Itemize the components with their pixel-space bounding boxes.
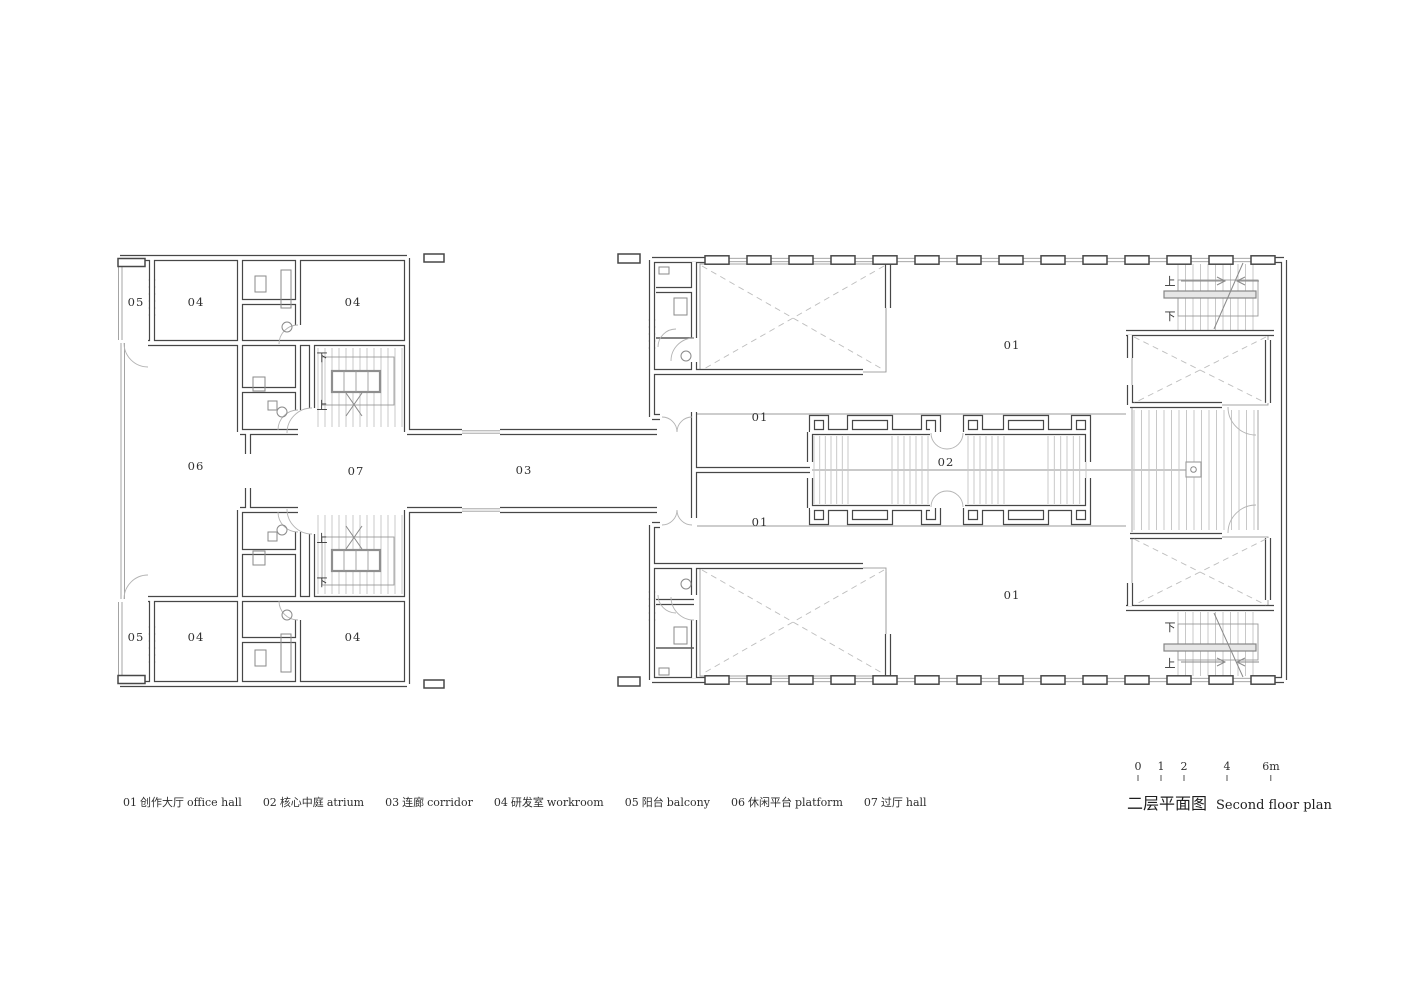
room-label-01-lower: 01 — [1004, 588, 1021, 602]
scale-tick-4: 4 — [1224, 760, 1231, 781]
legend-en: office hall — [187, 796, 242, 809]
room-label-01-upper: 01 — [1004, 338, 1021, 352]
legend-item-07: 07过厅hall — [864, 794, 930, 810]
sanitary-fixtures — [253, 267, 691, 675]
stair-up-label: 上 — [317, 532, 328, 545]
title-chinese: 二层平面图 — [1127, 794, 1207, 813]
legend-zh: 核心中庭 — [280, 796, 324, 809]
tick-mark — [1161, 775, 1162, 781]
room-label-02: 02 — [938, 455, 955, 469]
legend-zh: 连廊 — [402, 796, 424, 809]
tick-mark — [1227, 775, 1228, 781]
room-label-03: 03 — [516, 463, 533, 477]
legend-zh: 阳台 — [642, 796, 664, 809]
scale-tick-1: 1 — [1158, 760, 1165, 781]
scale-tick-0: 0 — [1135, 760, 1142, 781]
room-label-07: 07 — [348, 464, 365, 478]
stair-down-label: 下 — [317, 351, 328, 364]
legend-zh: 休闲平台 — [748, 796, 792, 809]
floor-plan-drawing: 05 04 04 06 07 03 05 04 04 01 01 01 01 0… — [0, 0, 1414, 1000]
void-x-icon — [702, 570, 884, 674]
void-x-icon — [1134, 337, 1266, 403]
room-label-06: 06 — [188, 459, 205, 473]
room-label-01-entry-lower: 01 — [752, 515, 769, 529]
floor-plan-page: 05 04 04 06 07 03 05 04 04 01 01 01 01 0… — [0, 0, 1414, 1000]
legend-item-02: 02核心中庭atrium — [263, 794, 367, 810]
legend-en: corridor — [427, 796, 473, 809]
stair-up-label: 上 — [317, 399, 328, 412]
room-label-01-entry-upper: 01 — [752, 410, 769, 424]
legend-num: 05 — [625, 796, 639, 809]
legend-num: 01 — [123, 796, 137, 809]
drawing-title: 二层平面图Second floor plan — [1127, 790, 1332, 814]
void-x-icon — [702, 266, 884, 370]
legend-num: 02 — [263, 796, 277, 809]
legend-en: workroom — [547, 796, 604, 809]
legend-item-05: 05阳台balcony — [625, 794, 713, 810]
room-label-04-upper-left: 04 — [188, 295, 205, 309]
legend-en: platform — [795, 796, 843, 809]
legend-item-04: 04研发室workroom — [494, 794, 607, 810]
tick-mark — [1138, 775, 1139, 781]
scale-bar: 0 1 2 4 6m — [1131, 760, 1291, 784]
legend-item-03: 03连廊corridor — [385, 794, 476, 810]
scale-tick-2: 2 — [1181, 760, 1188, 781]
stair-handrail — [1164, 291, 1256, 298]
legend-item-01: 01创作大厅office hall — [123, 794, 245, 810]
title-english: Second floor plan — [1216, 798, 1332, 813]
stair-down-label: 下 — [1165, 310, 1176, 323]
legend-zh: 创作大厅 — [140, 796, 184, 809]
stair-up-label: 上 — [1165, 657, 1176, 670]
room-label-04-upper-right: 04 — [345, 295, 362, 309]
legend-zh: 过厅 — [881, 796, 903, 809]
legend-num: 06 — [731, 796, 745, 809]
legend-en: hall — [906, 796, 927, 809]
tick-mark — [1184, 775, 1185, 781]
stair-handrail — [1164, 644, 1256, 651]
room-label-04-lower-left: 04 — [188, 630, 205, 644]
legend-en: balcony — [667, 796, 710, 809]
stair-down-label: 下 — [317, 576, 328, 589]
void-x-icon — [1134, 539, 1266, 605]
tick-mark — [1271, 775, 1272, 781]
legend-num: 04 — [494, 796, 508, 809]
legend-item-06: 06休闲平台platform — [731, 794, 846, 810]
scale-tick-6m: 6m — [1262, 760, 1279, 781]
legend: 01创作大厅office hall 02核心中庭atrium 03连廊corri… — [123, 794, 930, 810]
legend-zh: 研发室 — [511, 796, 544, 809]
room-label-05-lower: 05 — [128, 630, 145, 644]
room-label-05-upper: 05 — [128, 295, 145, 309]
legend-en: atrium — [327, 796, 364, 809]
legend-num: 03 — [385, 796, 399, 809]
room-label-04-lower-right: 04 — [345, 630, 362, 644]
stair-up-label: 上 — [1165, 275, 1176, 288]
stair-down-label: 下 — [1165, 621, 1176, 634]
legend-num: 07 — [864, 796, 878, 809]
